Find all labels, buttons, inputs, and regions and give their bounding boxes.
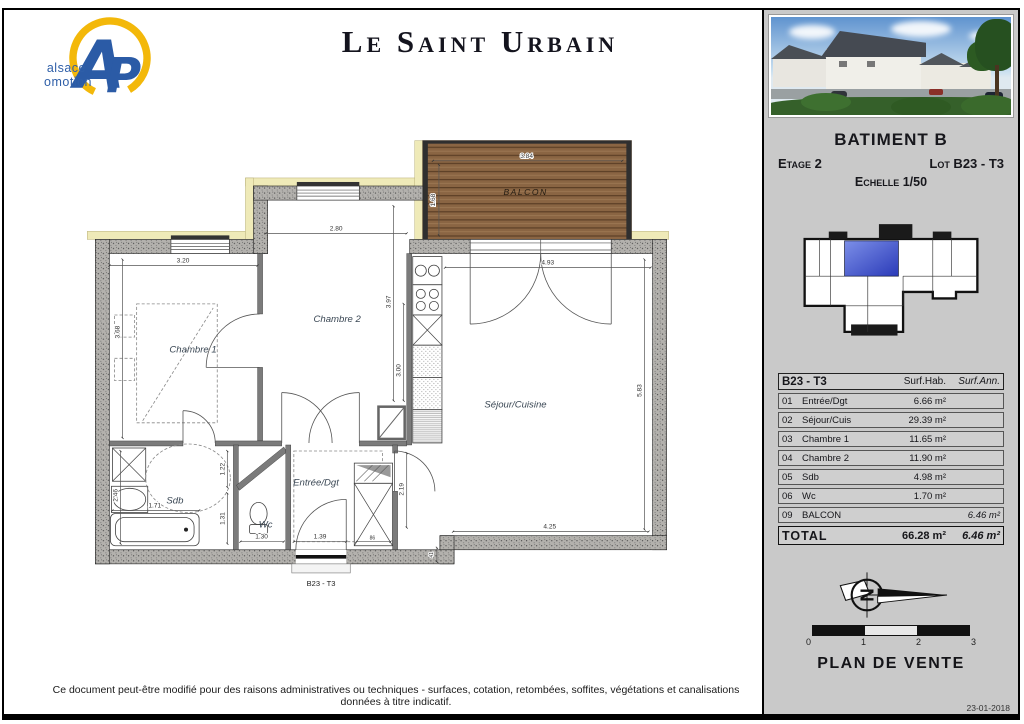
row-hab: 11.65 m² [884,434,946,445]
lot-number: Lot B23 - T3 [929,156,1004,171]
alsace-promotion-logo: A P alsace promotion [44,10,168,112]
plan-de-vente-title: PLAN DE VENTE [764,655,1018,673]
dim-door-width: 1.39 [314,534,327,541]
table-row: 03 Chambre 1 11.65 m² [778,431,1004,447]
dim-tub-width: 1.71 [148,502,161,509]
dim-86: 86 [370,536,376,542]
dim-sdb-height: 2.46 [112,489,119,502]
page-title: Le Saint Urbain [290,24,670,60]
kitchen-units [413,257,442,443]
highlighted-unit [845,241,899,276]
row-name: Séjour/Cuis [802,415,884,426]
row-num: 05 [782,472,802,483]
logo-text-promotion: promotion [44,75,92,89]
row-name: Chambre 1 [802,434,884,445]
table-row: 05 Sdb 4.98 m² [778,469,1004,485]
dim-kitchen-height: 3.00 [396,364,403,377]
row-num: 02 [782,415,802,426]
scale-bar [812,625,970,636]
table-header-hab: Surf.Hab. [884,376,946,387]
dim-131: 1.31 [219,512,226,525]
row-ann: 6.46 m² [946,510,1000,521]
room-label-chambre2: Chambre 2 [314,314,362,325]
entry-closet [294,451,393,546]
row-hab: 29.39 m² [884,415,946,426]
batiment-title: BATIMENT B [764,130,1018,150]
dim-122: 1.22 [219,462,226,475]
total-ann: 6.46 m² [946,530,1000,542]
table-row: 09 BALCON 6.46 m² [778,507,1004,523]
row-hab: 1.70 m² [884,491,946,502]
row-name: Wc [802,491,884,502]
scale-bar-labels: 0 1 2 3 [806,637,976,647]
scale-3: 3 [971,637,976,647]
logo-text-alsace: alsace [47,61,86,75]
room-label-sdb: Sdb [166,495,184,506]
table-row: 01 Entrée/Dgt 6.66 m² [778,393,1004,409]
scale-1: 1 [861,637,866,647]
plan-de-vente-sheet: A P alsace promotion Le Saint Urbain [0,0,1024,724]
table-header-ann: Surf.Ann. [946,376,1000,387]
row-num: 09 [782,510,802,521]
bed [114,304,217,423]
row-name: Entrée/Dgt [802,396,884,407]
scale-label: Echelle 1/50 [764,175,1018,189]
lot-label: B23 - T3 [307,579,336,588]
row-hab: 4.98 m² [884,472,946,483]
date: 23-01-2018 [967,703,1010,713]
table-row: 06 Wc 1.70 m² [778,488,1004,504]
row-num: 04 [782,453,802,464]
room-label-entree: Entrée/Dgt [293,477,339,488]
scale-0: 0 [806,637,811,647]
etage-label: Etage 2 [778,156,822,171]
floor-plan: 3.84 1.68 BALCON [52,130,712,635]
technical-shaft [378,407,404,439]
dim-c1-width: 3.20 [177,258,190,265]
row-hab: 6.66 m² [884,396,946,407]
table-header: B23 - T3 Surf.Hab. Surf.Ann. [778,373,1004,390]
building-photo [771,17,1011,115]
dim-41: 41 [429,552,435,558]
dim-sejour-bottom-width: 4.25 [543,524,556,531]
dim-c1-height: 3.68 [115,325,122,338]
row-num: 06 [782,491,802,502]
row-name: Sdb [802,472,884,483]
table-row: 02 Séjour/Cuis 29.39 m² [778,412,1004,428]
surface-table: B23 - T3 Surf.Hab. Surf.Ann. 01 Entrée/D… [778,373,1004,545]
north-arrow-icon: N [816,567,966,623]
table-header-lot: B23 - T3 [782,376,884,388]
row-name: Chambre 2 [802,453,884,464]
logo-letter-p: P [106,48,141,104]
room-label-sejour: Séjour/Cuisine [484,400,546,411]
row-num: 01 [782,396,802,407]
dim-sejour-height: 5.83 [636,384,643,397]
room-label-wc: Wc [259,520,273,531]
row-num: 03 [782,434,802,445]
row-name: BALCON [802,510,884,521]
key-plan [793,213,989,343]
compass-letter: N [856,588,877,601]
total-label: TOTAL [782,529,884,543]
dim-balcony-width: 3.84 [520,153,533,160]
total-hab: 66.28 m² [884,530,946,542]
dim-sejour-width: 4.93 [541,260,554,267]
dim-balcony-depth: 1.68 [430,193,437,206]
scale-2: 2 [916,637,921,647]
building-photo-frame [768,14,1014,118]
room-label-chambre1: Chambre 1 [169,344,216,355]
table-row: 04 Chambre 2 11.90 m² [778,450,1004,466]
title-block-sidebar: BATIMENT B Etage 2 Lot B23 - T3 Echelle … [762,10,1018,714]
dim-wc-width: 1.30 [255,534,268,541]
table-total-row: TOTAL 66.28 m² 6.46 m² [778,526,1004,545]
disclaimer-text: Ce document peut-être modifié pour des r… [40,684,752,708]
balcony: 3.84 1.68 BALCON [423,141,632,240]
dim-c2-height: 3.97 [386,295,393,308]
row-hab: 11.90 m² [884,453,946,464]
dim-c2-width: 2.80 [330,225,343,232]
room-label-balcon: BALCON [503,187,547,197]
dim-nook-height: 2.19 [399,483,406,496]
